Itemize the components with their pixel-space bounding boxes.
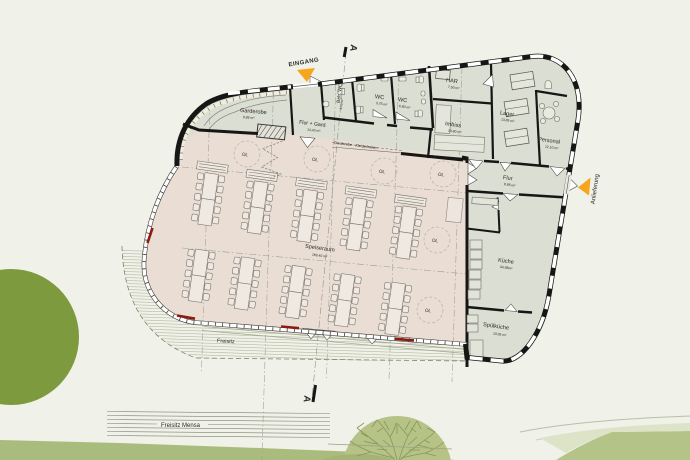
svg-text:OL: OL [242, 152, 249, 158]
svg-text:OL: OL [379, 169, 386, 175]
svg-text:OL: OL [425, 308, 432, 314]
svg-text:OL: OL [312, 157, 319, 163]
svg-text:Freisitz: Freisitz [217, 338, 235, 345]
svg-text:OL: OL [432, 238, 439, 244]
svg-text:OL: OL [438, 172, 445, 178]
svg-text:Freisitz Mensa: Freisitz Mensa [161, 423, 201, 429]
